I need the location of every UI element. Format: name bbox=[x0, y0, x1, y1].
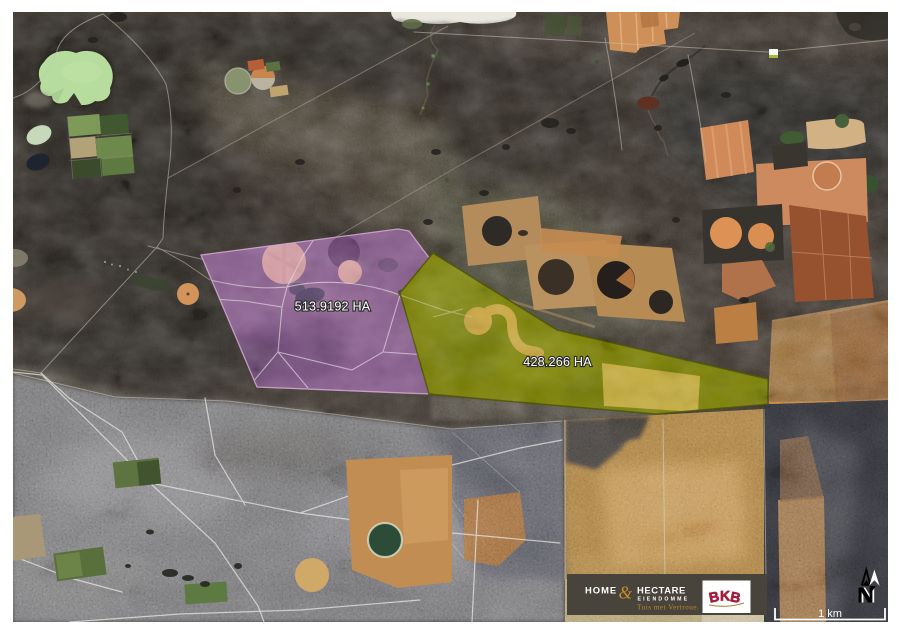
svg-text:513.9192 HA: 513.9192 HA bbox=[295, 300, 371, 314]
svg-text:&: & bbox=[619, 583, 633, 603]
svg-text:EIENDOMME: EIENDOMME bbox=[638, 597, 690, 603]
svg-text:K: K bbox=[720, 588, 730, 604]
svg-text:428.266 HA: 428.266 HA bbox=[523, 355, 592, 369]
svg-text:HOME: HOME bbox=[585, 585, 617, 596]
svg-text:Tuis met Vertroue.: Tuis met Vertroue. bbox=[637, 604, 699, 612]
svg-text:HECTARE: HECTARE bbox=[637, 585, 686, 596]
svg-text:1 km: 1 km bbox=[818, 608, 842, 620]
